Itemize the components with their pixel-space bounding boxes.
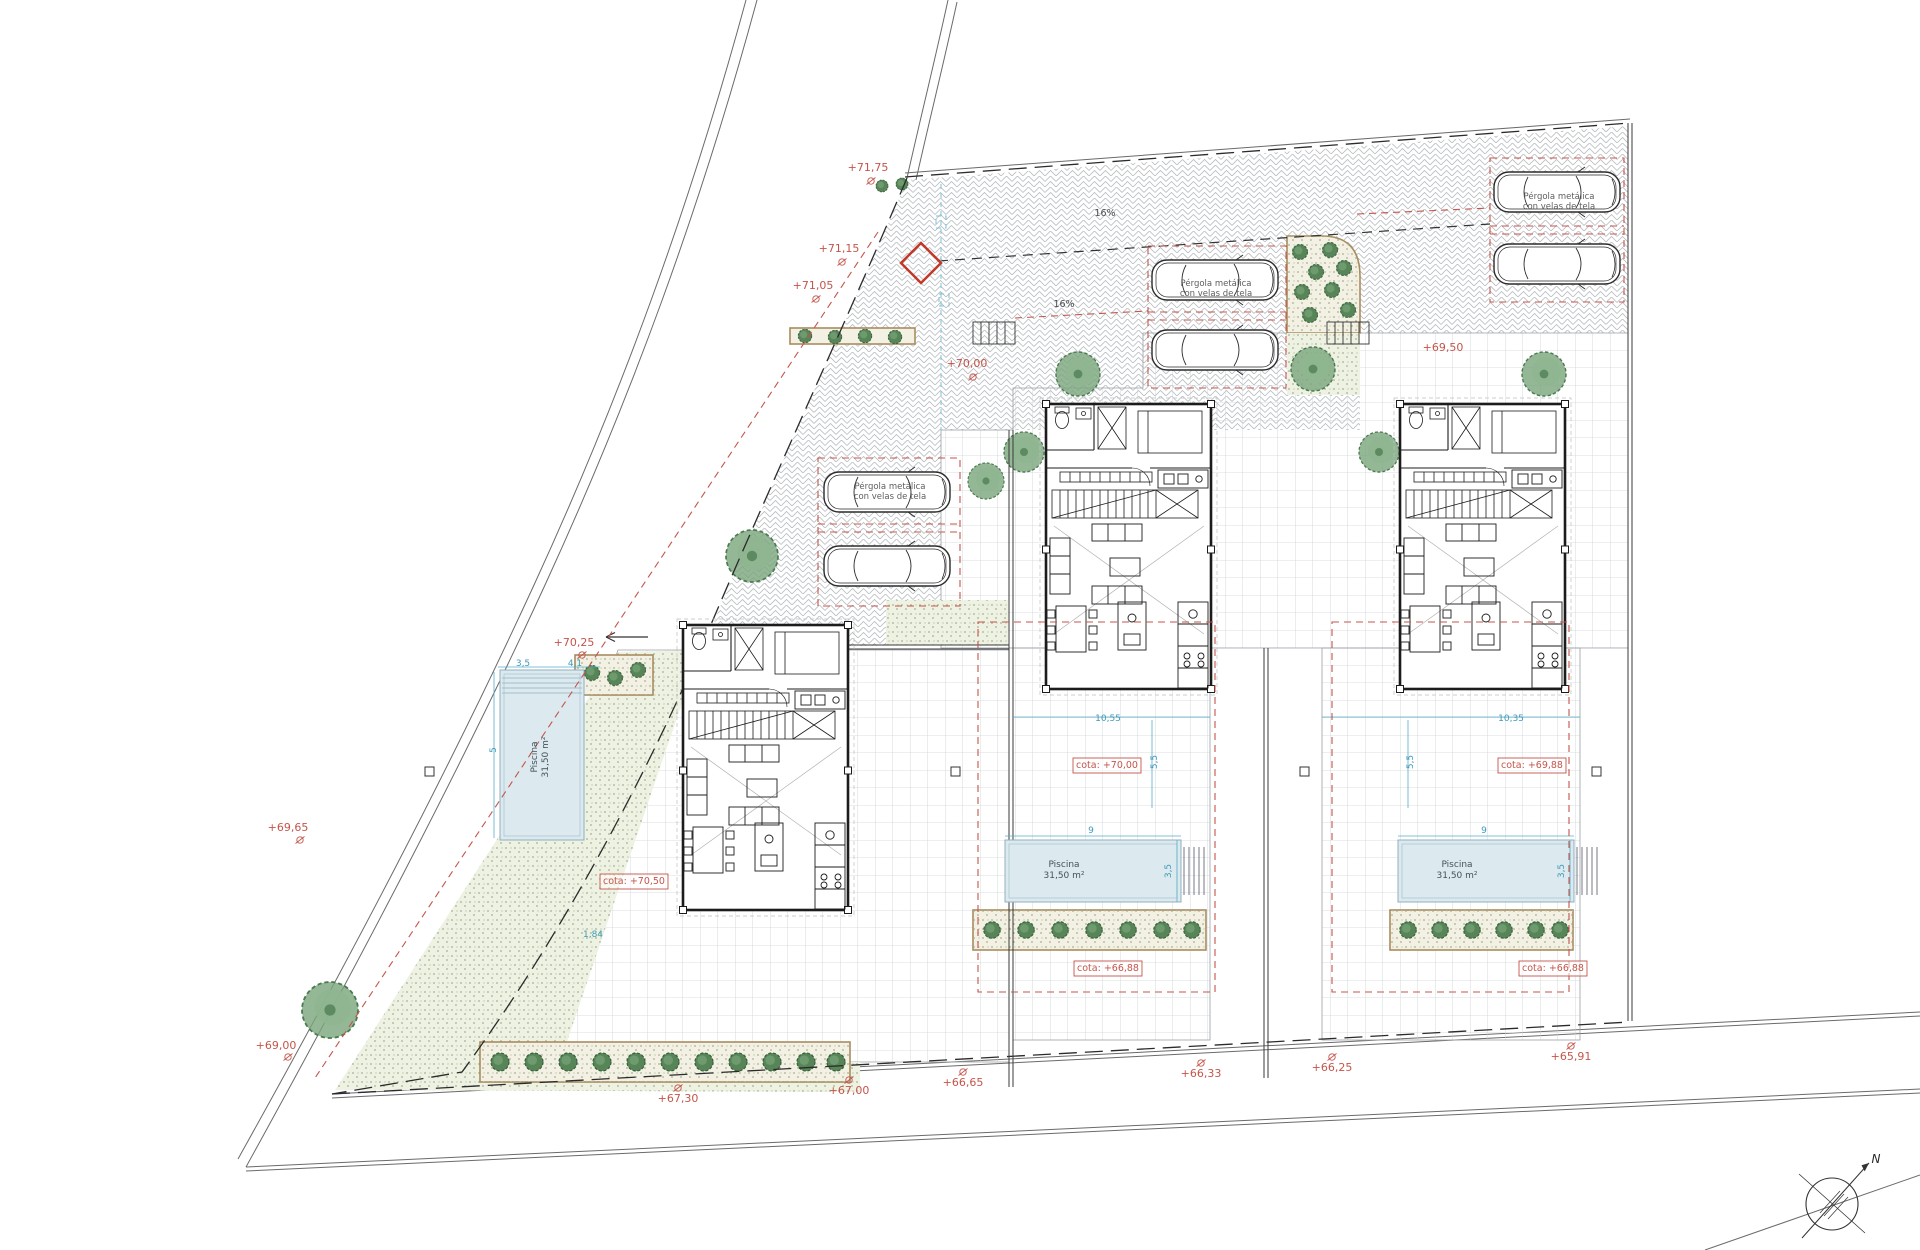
label-text: 10,35	[1498, 714, 1524, 724]
label-text: +71,05	[793, 279, 834, 292]
label-text: 31,50 m²	[1436, 871, 1477, 881]
label-text: con velas de tela	[1523, 202, 1595, 212]
label-text: Piscina	[1048, 860, 1079, 870]
label-text: +69,00	[256, 1039, 297, 1052]
planter-corner	[876, 178, 908, 192]
house-2	[1040, 398, 1217, 695]
label-text: Piscina	[1441, 860, 1472, 870]
label-text: +66,33	[1181, 1067, 1222, 1080]
car-icon	[1494, 239, 1620, 289]
label-text: 31,50 m²	[1043, 871, 1084, 881]
elevation-label: +66,25	[1312, 1054, 1353, 1075]
label-text: con velas de tela	[1180, 289, 1252, 299]
house-3	[1394, 398, 1571, 695]
elevation-label: +69,50	[1423, 341, 1464, 354]
pergola-label: Pérgola metálicacon velas de tela	[854, 481, 926, 502]
dims-label: 5,5	[1150, 755, 1160, 769]
label-text: +71,75	[848, 161, 889, 174]
planter-house1	[575, 655, 653, 695]
label-text: 5,5	[1150, 755, 1160, 769]
elevation-marker-icon	[284, 1054, 293, 1061]
elevation-label: +69,00	[256, 1039, 297, 1061]
label-text: +71,15	[819, 242, 860, 255]
cota-label: cota: +66,88	[1074, 961, 1142, 976]
grass-strip	[886, 600, 1008, 645]
label-text: Pérgola metálica	[1181, 278, 1252, 289]
slope-label: 16%	[1094, 208, 1115, 219]
label-text: Pérgola metálica	[855, 481, 926, 492]
dims-label: 10,55	[1095, 714, 1121, 724]
north-label: N	[1872, 1152, 1881, 1166]
elevation-marker-icon	[1197, 1060, 1206, 1067]
label-text: 31,50 m²	[541, 736, 551, 777]
cota-label: cota: +70,00	[1073, 758, 1141, 773]
label-text: +69,65	[268, 821, 309, 834]
pool-label: Piscina31,50 m²	[530, 736, 551, 777]
elevation-marker-icon	[1328, 1054, 1337, 1061]
label-text: 16%	[1094, 208, 1115, 219]
dims-label: 1,84	[583, 930, 603, 940]
label-text: +65,91	[1551, 1050, 1592, 1063]
pergola-label: Pérgola metálicacon velas de tela	[1523, 191, 1595, 212]
label-text: cota: +70,50	[603, 876, 665, 887]
dims-label: 4,1	[568, 659, 582, 669]
dims-label: 3,5	[516, 659, 530, 669]
shrub-bed	[1287, 236, 1360, 333]
label-text: N	[1872, 1152, 1881, 1166]
label-text: 9	[1481, 826, 1487, 836]
dims-label: 5	[489, 747, 499, 753]
elevation-label: +69,65	[268, 821, 309, 844]
planter-pool-3	[1390, 910, 1573, 950]
dims-label: 5,5	[1406, 755, 1416, 769]
label-text: 5,5	[1406, 755, 1416, 769]
tree-icon	[1004, 432, 1044, 472]
label-text: +70,00	[947, 357, 988, 370]
elevation-marker-icon	[867, 178, 876, 185]
elevation-label: +65,91	[1551, 1043, 1592, 1064]
label-text: 16%	[1053, 299, 1074, 310]
label-text: 9	[1088, 826, 1094, 836]
house-1	[677, 619, 854, 916]
cota-label: cota: +69,88	[1498, 758, 1566, 773]
car-icon	[1152, 325, 1278, 375]
label-text: 4,1	[568, 659, 582, 669]
drive-arrow-icon	[606, 633, 648, 642]
label-text: +67,30	[658, 1092, 699, 1105]
tree-icon	[302, 982, 358, 1038]
tree-icon	[968, 463, 1004, 499]
pool-label: Piscina31,50 m²	[1043, 860, 1084, 881]
planter-bottom	[480, 1042, 850, 1082]
tree-icon	[1359, 432, 1399, 472]
elevation-label: +66,65	[943, 1069, 984, 1090]
label-text: +69,50	[1423, 341, 1464, 354]
elevation-label: +71,05	[793, 279, 834, 303]
site-plan-canvas: +71,75+71,15+71,05+70,25+70,00+69,65+69,…	[0, 0, 1920, 1250]
pergola-label: Pérgola metálicacon velas de tela	[1180, 278, 1252, 299]
dims-label: 3,5	[1557, 864, 1567, 878]
cota-label: cota: +66,88	[1519, 961, 1587, 976]
label-text: +67,00	[829, 1084, 870, 1097]
dims-label: 10,35	[1498, 714, 1524, 724]
dims-label: 9	[1088, 826, 1094, 836]
cota-label: cota: +70,50	[600, 874, 668, 889]
pool-3	[1398, 836, 1597, 902]
dims-label: 9	[1481, 826, 1487, 836]
label-text: cota: +70,00	[1076, 760, 1138, 771]
label-text: Pérgola metálica	[1524, 191, 1595, 202]
label-text: cota: +66,88	[1077, 963, 1139, 974]
elevation-label: +66,33	[1181, 1060, 1222, 1081]
label-text: 3,5	[1164, 864, 1174, 878]
label-text: 3,5	[516, 659, 530, 669]
tree-icon	[726, 530, 778, 582]
slope-label: 16%	[1053, 299, 1074, 310]
planter-pool-2	[973, 910, 1206, 950]
tree-icon	[1522, 352, 1566, 396]
label-text: +66,65	[943, 1076, 984, 1089]
elevation-label: +71,15	[819, 242, 860, 266]
label-text: Piscina	[530, 741, 540, 772]
elevation-marker-icon	[296, 837, 305, 844]
site-plan-page: +71,75+71,15+71,05+70,25+70,00+69,65+69,…	[0, 0, 1920, 1250]
dims-label: 3,5	[1164, 864, 1174, 878]
tree-icon	[1291, 347, 1335, 391]
label-text: 1,84	[583, 930, 603, 940]
label-text: +66,25	[1312, 1061, 1353, 1074]
label-text: con velas de tela	[854, 492, 926, 502]
elevation-marker-icon	[959, 1069, 968, 1076]
label-text: 3,5	[1557, 864, 1567, 878]
label-text: +70,25	[554, 636, 595, 649]
north-compass-icon	[1799, 1163, 1869, 1238]
elevation-marker-icon	[1567, 1043, 1576, 1050]
elevation-marker-icon	[838, 259, 847, 266]
pool-label: Piscina31,50 m²	[1436, 860, 1477, 881]
elevation-marker-icon	[812, 296, 821, 303]
tree-icon	[1056, 352, 1100, 396]
label-text: 10,55	[1095, 714, 1121, 724]
label-text: cota: +66,88	[1522, 963, 1584, 974]
car-icon	[824, 541, 950, 591]
pool-2	[1005, 836, 1204, 902]
label-text: 5	[489, 747, 499, 753]
label-text: cota: +69,88	[1501, 760, 1563, 771]
